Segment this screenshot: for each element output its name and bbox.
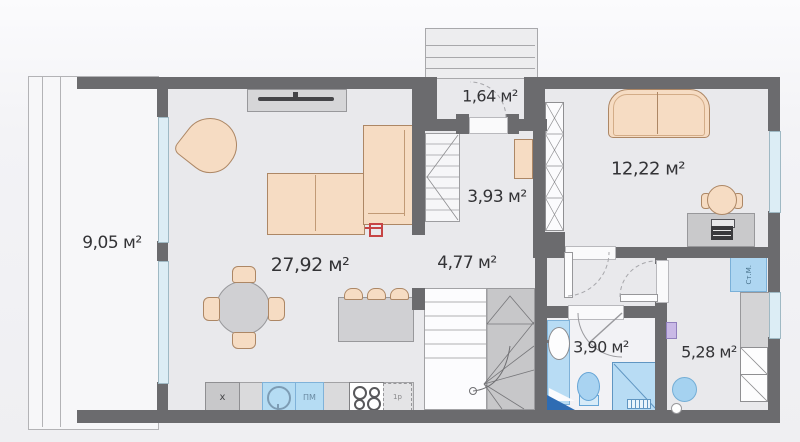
bath-sink bbox=[548, 327, 570, 360]
wall-segment bbox=[157, 382, 168, 423]
wall-segment bbox=[768, 211, 780, 292]
step-line bbox=[426, 57, 535, 58]
window bbox=[158, 117, 169, 243]
printer-line bbox=[713, 230, 731, 231]
wall-segment bbox=[533, 77, 545, 252]
dining-chair bbox=[232, 332, 256, 349]
sofa-backrest-line bbox=[404, 130, 405, 216]
step-line bbox=[426, 45, 535, 46]
wall-segment bbox=[536, 77, 780, 89]
dining-chair bbox=[232, 266, 256, 283]
sofa-chaise bbox=[363, 125, 415, 225]
terrace-deck bbox=[28, 76, 159, 430]
wall-segment bbox=[655, 300, 667, 410]
wall-segment bbox=[547, 306, 568, 318]
floor-socket-icon bbox=[369, 223, 383, 237]
kitchen-cabinet-x: x bbox=[205, 382, 240, 412]
room-label-vestibule: 1,64 м² bbox=[462, 87, 518, 106]
bedroom-sofa-divider bbox=[657, 92, 658, 134]
dining-chair bbox=[268, 297, 285, 321]
bar-stool bbox=[390, 288, 409, 300]
wall-segment bbox=[412, 119, 457, 131]
door-post bbox=[456, 114, 469, 134]
wall-segment bbox=[768, 77, 780, 131]
step-line bbox=[426, 68, 535, 69]
kitchen-cabinet-label: x bbox=[220, 392, 226, 403]
window bbox=[158, 261, 169, 384]
utility-shelves bbox=[740, 347, 768, 403]
bedroom-sofa-inner-line bbox=[613, 94, 705, 136]
kitchen-end-unit: 1р bbox=[383, 383, 412, 411]
wall-segment bbox=[622, 306, 655, 318]
dining-chair bbox=[203, 297, 220, 321]
floor-plan: x ПМ 1р bbox=[0, 0, 800, 442]
dining-table bbox=[216, 281, 270, 335]
room-label-bathroom: 3,90 м² bbox=[573, 338, 629, 357]
door-leaf-bedroom bbox=[564, 252, 573, 298]
printer-icon bbox=[711, 226, 733, 240]
burner-icon bbox=[367, 397, 381, 411]
utility-cabinet bbox=[740, 292, 770, 349]
door-opening-vestibule bbox=[469, 117, 508, 134]
terrace-plank-line bbox=[42, 77, 43, 427]
toilet-bowl bbox=[577, 372, 600, 401]
burner-icon bbox=[354, 399, 365, 410]
door-opening-bathroom bbox=[568, 305, 624, 320]
window bbox=[769, 292, 781, 339]
bar-stool bbox=[344, 288, 363, 300]
dishwasher-label: ПМ bbox=[303, 393, 316, 402]
sofa-seat bbox=[267, 173, 365, 235]
understairs-storage bbox=[425, 133, 460, 222]
tv-stand-icon bbox=[293, 92, 298, 97]
dishwasher: ПМ bbox=[295, 382, 324, 412]
wall-segment bbox=[412, 77, 425, 235]
printer-line bbox=[713, 235, 731, 236]
door-marker-icon bbox=[666, 322, 677, 339]
wall-segment bbox=[412, 288, 425, 310]
staircase bbox=[424, 288, 535, 410]
washing-machine-label: Ст.М. bbox=[745, 265, 753, 284]
terrace-plank-line bbox=[60, 77, 61, 427]
bar-stool bbox=[367, 288, 386, 300]
room-label-terrace: 9,05 м² bbox=[82, 233, 141, 253]
hall-shelf bbox=[514, 139, 533, 179]
window bbox=[769, 131, 781, 213]
wall-segment bbox=[614, 247, 768, 258]
small-drain-icon bbox=[671, 403, 682, 414]
wall-segment bbox=[535, 252, 547, 410]
room-label-utility: 5,28 м² bbox=[681, 343, 737, 362]
room-label-bedroom: 12,22 м² bbox=[611, 159, 685, 180]
sink-basin-icon bbox=[267, 386, 291, 410]
entrance-steps bbox=[425, 28, 538, 79]
wall-segment bbox=[157, 241, 168, 261]
room-label-living: 27,92 м² bbox=[271, 254, 349, 276]
wall-segment bbox=[157, 77, 168, 117]
door-leaf-utility bbox=[620, 294, 658, 302]
shower-tray-icon bbox=[627, 399, 651, 409]
kitchen-end-unit-label: 1р bbox=[393, 393, 402, 401]
sofa-cushion-line bbox=[315, 175, 316, 231]
washing-machine: Ст.М. bbox=[730, 257, 767, 292]
room-label-hallway: 4,77 м² bbox=[437, 253, 496, 273]
room-label-hall: 3,93 м² bbox=[467, 187, 526, 207]
tv-icon bbox=[258, 97, 334, 101]
boiler bbox=[672, 377, 697, 402]
wall-segment bbox=[77, 77, 425, 89]
kitchen-island bbox=[338, 297, 414, 342]
burner-icon bbox=[353, 386, 367, 400]
sofa-edge-line bbox=[368, 213, 404, 214]
floor-socket-cross bbox=[365, 227, 383, 229]
bedroom-wardrobe bbox=[545, 102, 564, 231]
desk-chair bbox=[707, 185, 737, 215]
